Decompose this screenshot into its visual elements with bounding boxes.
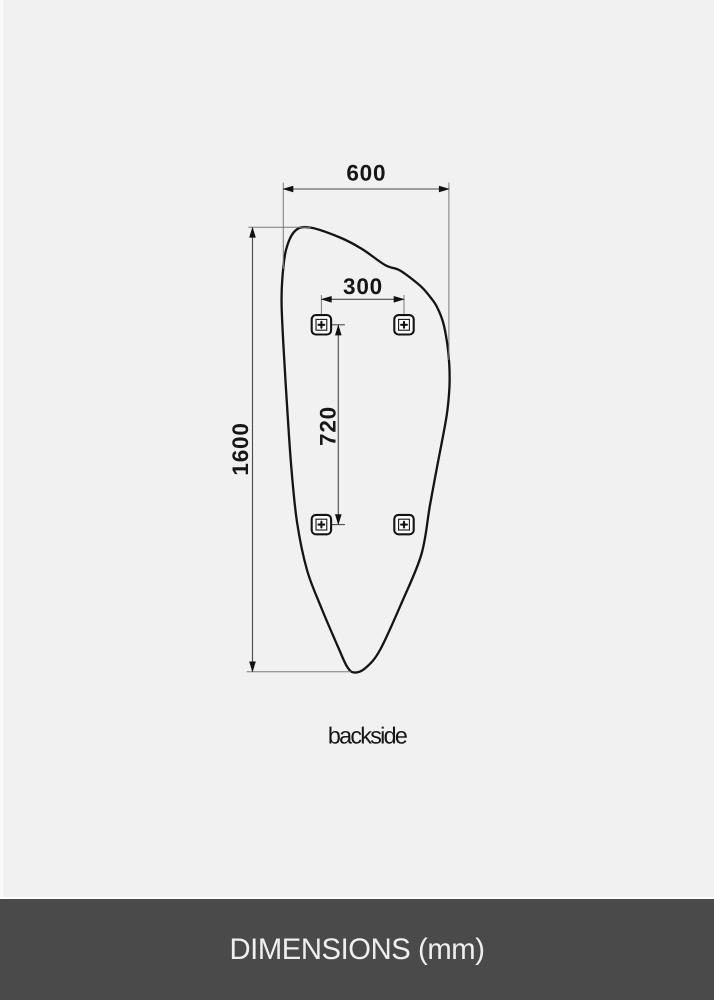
- svg-text:1600: 1600: [228, 422, 253, 475]
- svg-text:600: 600: [346, 161, 386, 186]
- svg-text:backside: backside: [328, 722, 407, 748]
- svg-text:300: 300: [343, 274, 383, 299]
- svg-text:720: 720: [315, 406, 340, 446]
